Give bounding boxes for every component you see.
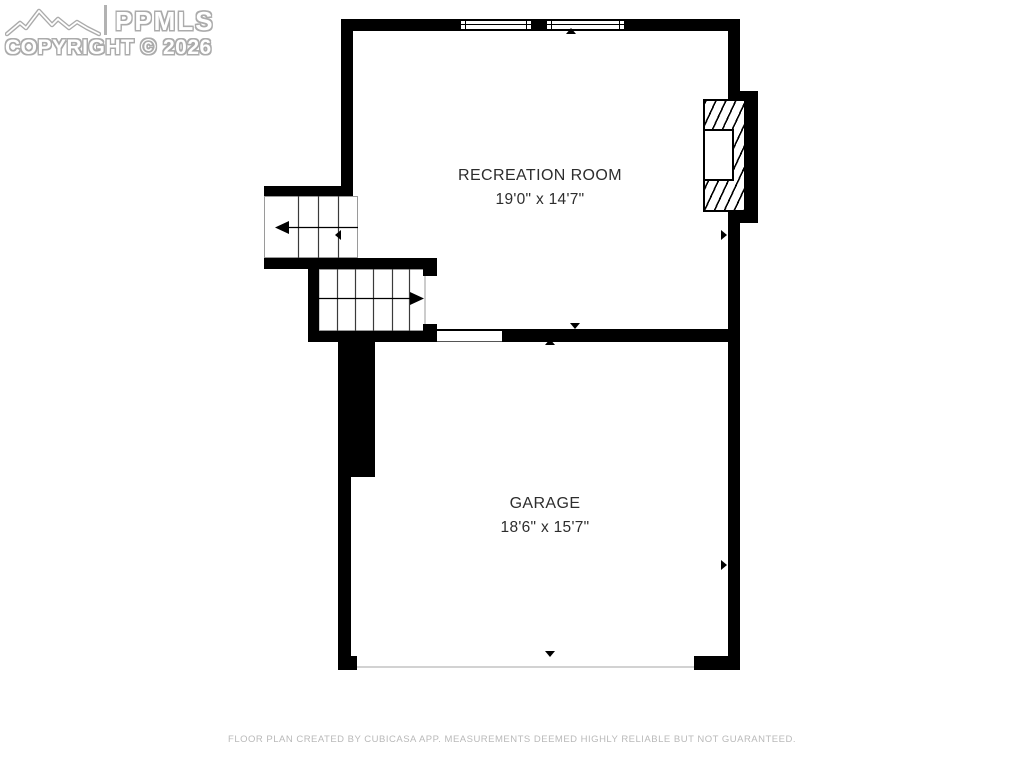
marker-up-icon [566, 28, 576, 34]
watermark: PPMLS COPYRIGHT © 2026 [5, 3, 235, 36]
watermark-copyright: COPYRIGHT © 2026 [5, 36, 212, 60]
marker-right-icon [721, 560, 727, 570]
watermark-divider [104, 5, 107, 35]
room-name: GARAGE [420, 494, 670, 513]
wall-stairs-top [264, 186, 353, 196]
firebox-icon [703, 129, 734, 181]
window-icon [459, 19, 533, 31]
window-jamb [526, 21, 527, 29]
floorplan-canvas: PPMLS COPYRIGHT © 2026 [0, 0, 1024, 767]
marker-up-icon [545, 339, 555, 345]
garage-door-threshold [357, 666, 694, 668]
room-label-recreation: RECREATION ROOM 19'0" x 14'7" [415, 166, 665, 209]
wall-stairs-lower-left [308, 269, 319, 331]
window-jamb [465, 21, 466, 29]
room-dimensions: 19'0" x 14'7" [415, 190, 665, 209]
stairs-upper-flight [264, 196, 358, 258]
wall-garage-left [338, 477, 351, 670]
room-label-garage: GARAGE 18'6" x 15'7" [420, 494, 670, 537]
window-jamb [551, 21, 552, 29]
marker-down-icon [545, 651, 555, 657]
stairs-lower-flight [319, 269, 437, 331]
wall-stairs-mid [264, 258, 437, 269]
footer-disclaimer: FLOOR PLAN CREATED BY CUBICASA APP. MEAS… [0, 734, 1024, 745]
window-icon [545, 19, 626, 31]
wall-left-recreation [341, 19, 353, 196]
room-dimensions: 18'6" x 15'7" [420, 518, 670, 537]
watermark-row: PPMLS [5, 3, 235, 36]
marker-left-icon [335, 230, 341, 240]
window-pane-line [461, 24, 531, 25]
watermark-brand: PPMLS [115, 6, 215, 37]
wall-garage-top [502, 329, 740, 342]
wall-garage-bottom-right [694, 656, 740, 670]
wall-garage-left-column [338, 329, 375, 477]
mountain-logo-icon [5, 4, 101, 37]
doorway-opening [437, 329, 502, 342]
marker-down-icon [570, 323, 580, 329]
marker-left-icon [345, 561, 351, 571]
window-pane-line [547, 24, 624, 25]
wall-garage-bottom-left [338, 656, 357, 670]
wall-top [341, 19, 740, 31]
room-name: RECREATION ROOM [415, 166, 665, 185]
window-jamb [619, 21, 620, 29]
marker-right-icon [721, 230, 727, 240]
